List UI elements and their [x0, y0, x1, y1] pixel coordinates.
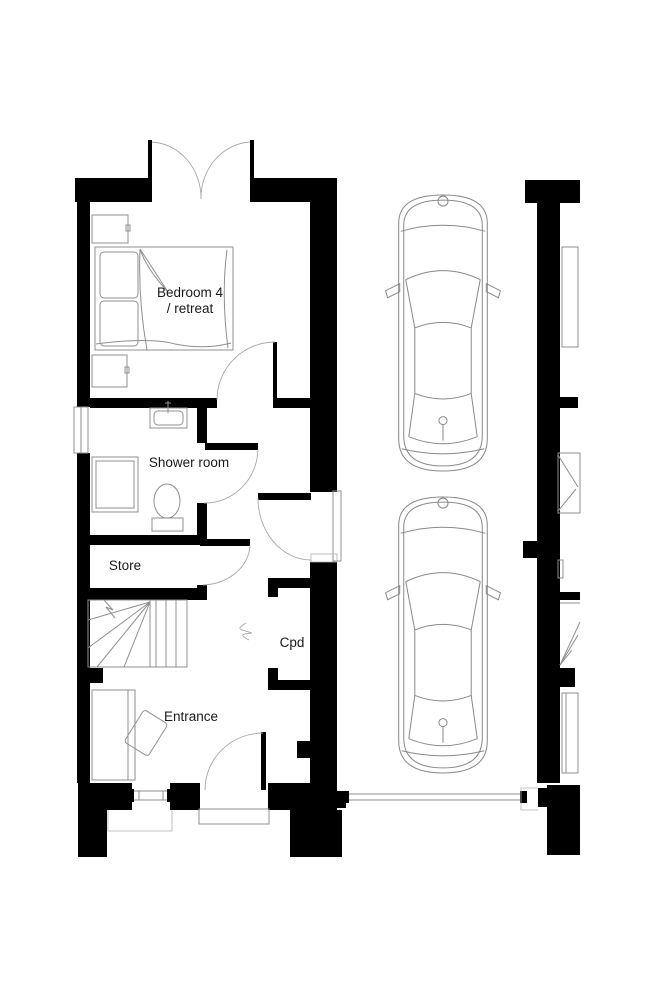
bottom-wall-left-pier: [78, 783, 132, 810]
floor-plan: Bedroom 4 / retreat Shower room Store Cp…: [0, 0, 661, 1001]
store-label: Store: [109, 558, 141, 573]
adjacent-wall: [537, 203, 560, 783]
adjacent-stair-pier: [555, 668, 575, 687]
bottom-left-wall-leg: [78, 810, 107, 857]
adjacent-shower-diagonal-2: [558, 489, 576, 511]
right-wall-upper: [310, 202, 337, 492]
duvet-right-wave: [224, 250, 228, 348]
adjacent-wall-top-pier: [525, 180, 580, 203]
shower-room-label: Shower room: [149, 455, 229, 470]
side-door-outer-step: [333, 491, 341, 561]
cpd-bottom-stub: [268, 668, 278, 690]
main-unit-walls: [75, 178, 346, 857]
french-door-arc-right: [201, 142, 250, 199]
adjacent-stair-winder: [560, 635, 578, 665]
cpd-label: Cpd: [280, 635, 305, 650]
store-door-leaf: [200, 539, 250, 546]
entrance-window: [133, 791, 169, 800]
stair-bottom-pier: [88, 668, 103, 683]
shower-door-leaf: [205, 443, 258, 450]
entrance-window-step: [108, 810, 172, 831]
cpd-top-stub: [268, 578, 278, 597]
adjacent-desk: [562, 693, 578, 773]
hall-wall-segment-1: [197, 402, 207, 443]
adjacent-porch-stub: [538, 788, 547, 807]
bedroom-label-line2: / retreat: [167, 301, 214, 316]
adjacent-shower-tray: [558, 453, 580, 513]
left-wall-upper: [77, 178, 90, 407]
adjacent-wall-mid-stub: [523, 541, 537, 558]
bedroom-bottom-wall-right: [273, 398, 310, 408]
duvet-edge-line: [140, 249, 147, 350]
side-door-arc: [258, 498, 311, 560]
pillow-top: [100, 252, 138, 298]
toilet-cistern: [152, 518, 183, 531]
french-door-leaf-left: [148, 140, 152, 202]
adjacent-stair-wall-stub: [560, 592, 580, 600]
gate-post-left: [343, 791, 349, 803]
cpd-bifold-leaf-bottom: [249, 641, 272, 665]
french-door-arc-left: [152, 142, 201, 199]
bedroom-door-arc: [217, 342, 275, 400]
shower-tray: [92, 457, 138, 512]
bedside-table-bottom: [92, 355, 127, 387]
adjacent-furniture: [562, 247, 578, 347]
adjacent-stair-winder: [560, 622, 580, 665]
adjacent-unit: [521, 180, 580, 855]
wash-basin-bowl: [154, 411, 183, 425]
entrance-window-jamb-right: [167, 789, 170, 802]
pillow-bottom: [100, 301, 138, 346]
shower-tray-inner: [96, 461, 134, 508]
adjacent-porch-block: [547, 785, 580, 855]
stair-top-wall: [88, 588, 203, 600]
bedroom-label-line1: Bedroom 4: [157, 285, 224, 300]
car-2: [386, 497, 501, 773]
cpd-bifold-swing-top: [240, 623, 252, 633]
staircase: [88, 600, 187, 667]
bottom-wall-right-pier: [268, 783, 337, 810]
entrance-window-jamb-left: [131, 789, 134, 802]
adjacent-shower-diagonal-1: [558, 455, 578, 487]
side-door-leaf: [258, 493, 311, 500]
chair: [124, 709, 168, 756]
car-1: [386, 195, 501, 471]
store-top-wall: [88, 535, 205, 545]
bottom-wall-mid-pier: [170, 783, 200, 810]
bedside-table-top: [92, 215, 128, 243]
cpd-bifold-swing-bottom: [243, 633, 252, 640]
entrance-fixtures: [92, 690, 168, 780]
front-door-arc: [205, 733, 263, 790]
toilet-bowl: [154, 484, 180, 518]
stair-winder-line: [88, 602, 150, 620]
adjacent-bedroom-wall-stub: [560, 397, 578, 408]
top-wall-right: [252, 178, 337, 202]
entrance-right-pier: [297, 741, 311, 758]
floor-plan-page: Bedroom 4 / retreat Shower room Store Cp…: [0, 0, 661, 1001]
store-door-arc: [203, 545, 250, 585]
bedroom-door-leaf: [273, 342, 277, 400]
right-wall-lower: [310, 562, 337, 783]
front-door-threshold: [199, 809, 269, 824]
driveway: [343, 195, 527, 803]
front-door-leaf: [261, 732, 266, 790]
french-door-leaf-right: [250, 140, 254, 202]
cpd-bifold-leaf-top: [247, 598, 273, 622]
entrance-label: Entrance: [164, 709, 218, 724]
stair-winder-line: [97, 602, 150, 667]
bottom-right-wall-leg: [290, 810, 342, 857]
